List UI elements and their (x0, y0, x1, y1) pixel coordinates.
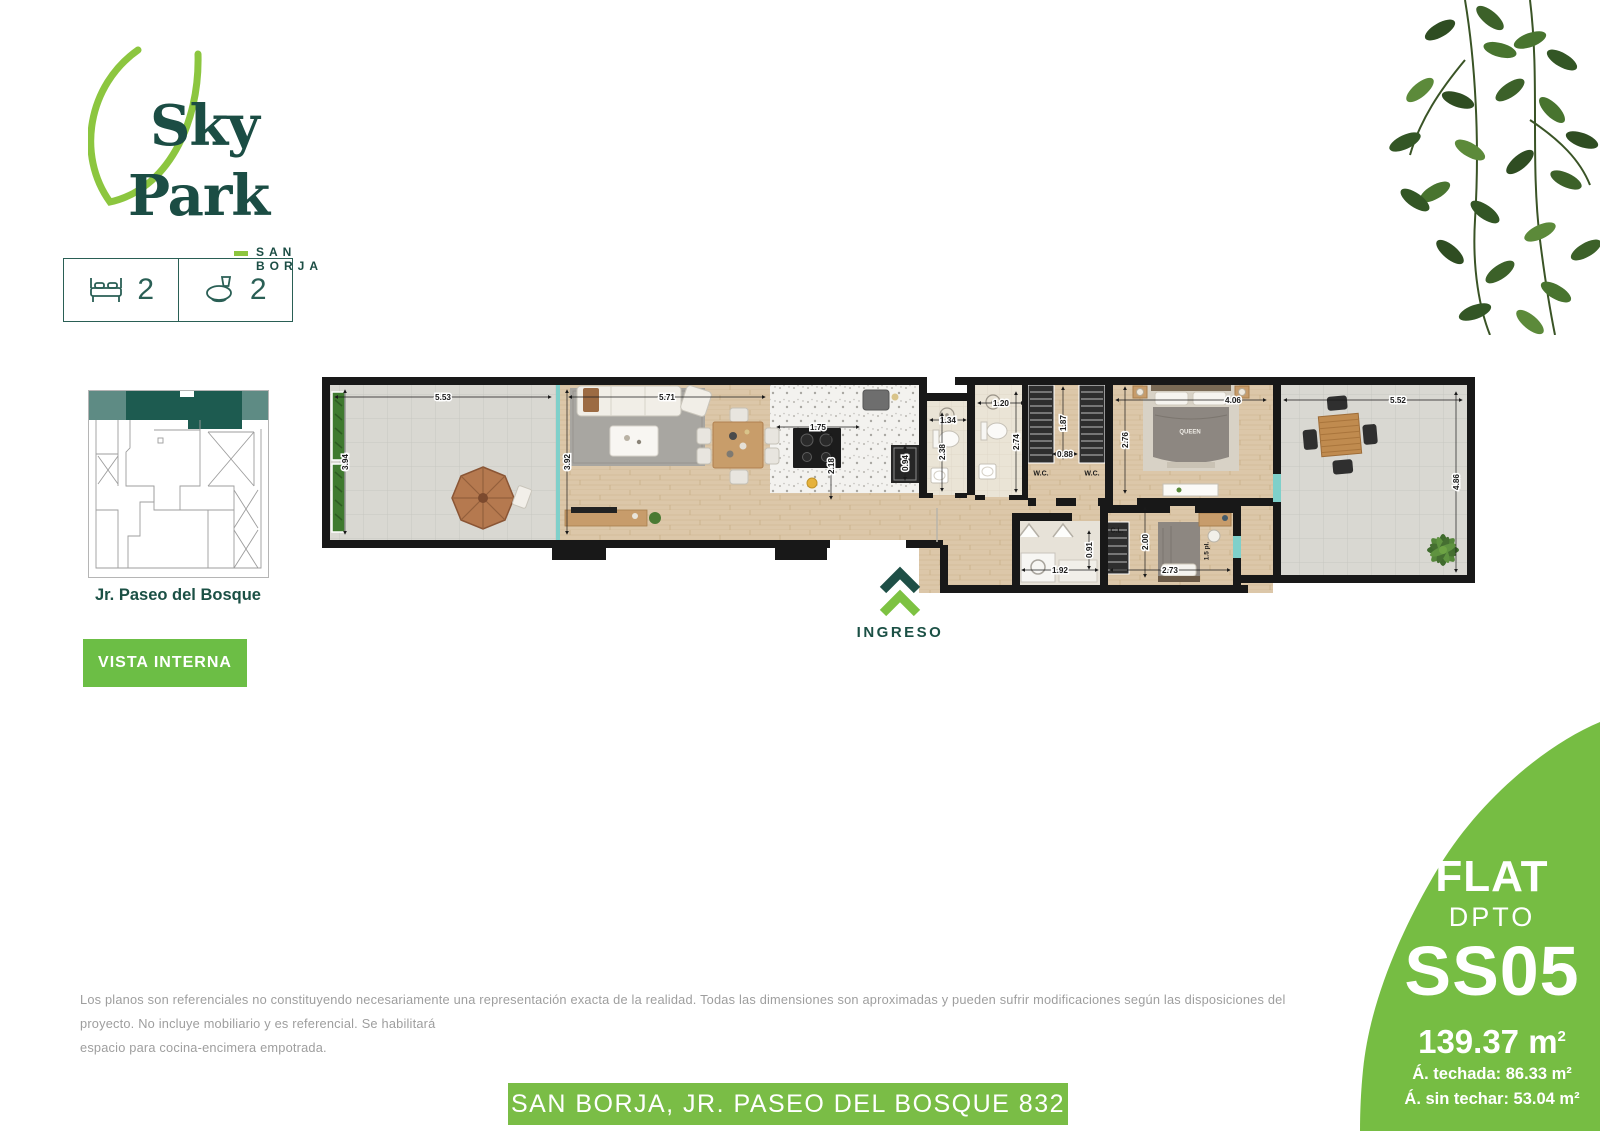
svg-text:1.87: 1.87 (1059, 415, 1068, 431)
unit-roofed-area: Á. techada: 86.33 m² (1352, 1064, 1600, 1085)
skypark-logo: Sky Park SAN BORJA (88, 40, 318, 230)
svg-text:0.91: 0.91 (1085, 542, 1094, 558)
svg-text:W.C.: W.C. (1033, 471, 1048, 478)
svg-text:1.5 pl.: 1.5 pl. (1204, 542, 1211, 561)
unit-type: FLAT (1352, 855, 1600, 899)
svg-text:2.38: 2.38 (938, 444, 947, 460)
svg-text:1.92: 1.92 (1052, 566, 1068, 575)
ingreso-label: INGRESO (857, 624, 944, 641)
flyer-page: Sky Park SAN BORJA 2 (0, 0, 1600, 1131)
vista-interna-button[interactable]: VISTA INTERNA (83, 639, 247, 687)
svg-text:3.94: 3.94 (341, 454, 350, 470)
map-strip-left (89, 391, 126, 420)
terrace-plant (1427, 534, 1459, 566)
svg-text:2.73: 2.73 (1162, 566, 1178, 575)
address-banner: SAN BORJA, JR. PASEO DEL BOSQUE 832 (508, 1083, 1068, 1125)
map-strip-right (242, 391, 268, 420)
disclaimer-line2: espacio para cocina-encimera empotrada. (80, 1040, 327, 1055)
street-label: Jr. Paseo del Bosque (38, 586, 318, 605)
svg-text:3.92: 3.92 (563, 454, 572, 470)
parasol (452, 467, 514, 529)
logo-dash (234, 251, 248, 256)
bedrooms-count: 2 (137, 273, 154, 307)
unit-open-area: Á. sin techar: 53.04 m² (1352, 1089, 1600, 1110)
svg-text:5.71: 5.71 (659, 393, 675, 402)
svg-text:W.C.: W.C. (1084, 471, 1099, 478)
svg-text:1.75: 1.75 (810, 423, 826, 432)
hanging-plant-decoration (1380, 0, 1600, 335)
disclaimer-line1: Los planos son referenciales no constitu… (80, 992, 1286, 1031)
disclaimer-text: Los planos son referenciales no constitu… (80, 988, 1315, 1060)
unit-total-area: 139.37 m2 (1352, 1024, 1600, 1060)
floor-plan-svg: 5.533.945.713.921.752.180.941.342.381.20… (315, 370, 1480, 650)
svg-text:0.88: 0.88 (1057, 450, 1073, 459)
location-map (88, 390, 269, 578)
svg-text:0.94: 0.94 (901, 455, 910, 471)
svg-text:5.53: 5.53 (435, 393, 451, 402)
facade-notch (927, 370, 955, 393)
unit-features-box: 2 2 (63, 258, 293, 322)
svg-text:4.86: 4.86 (1452, 474, 1461, 490)
logo-word-sky: Sky (150, 98, 259, 154)
svg-text:4.06: 4.06 (1225, 396, 1241, 405)
svg-text:2.00: 2.00 (1141, 534, 1150, 550)
svg-text:2.76: 2.76 (1121, 432, 1130, 448)
svg-text:2.18: 2.18 (827, 458, 836, 474)
svg-text:QUEEN: QUEEN (1179, 430, 1200, 436)
toilet-icon (204, 275, 238, 305)
bedrooms-feature: 2 (64, 259, 178, 321)
bed-icon (87, 276, 125, 304)
svg-text:5.52: 5.52 (1390, 396, 1406, 405)
logo-word-park: Park (128, 168, 269, 224)
svg-text:2.74: 2.74 (1012, 434, 1021, 450)
svg-text:1.20: 1.20 (993, 399, 1009, 408)
bathrooms-feature: 2 (178, 259, 293, 321)
bathrooms-count: 2 (250, 273, 267, 307)
unit-badge: FLAT DPTO SS05 139.37 m2 Á. techada: 86.… (1352, 855, 1600, 1110)
unit-number: SS05 (1352, 935, 1600, 1009)
svg-text:C.L.: C.L. (1110, 528, 1123, 535)
svg-text:1.34: 1.34 (940, 416, 956, 425)
unit-subtype: DPTO (1352, 903, 1600, 933)
